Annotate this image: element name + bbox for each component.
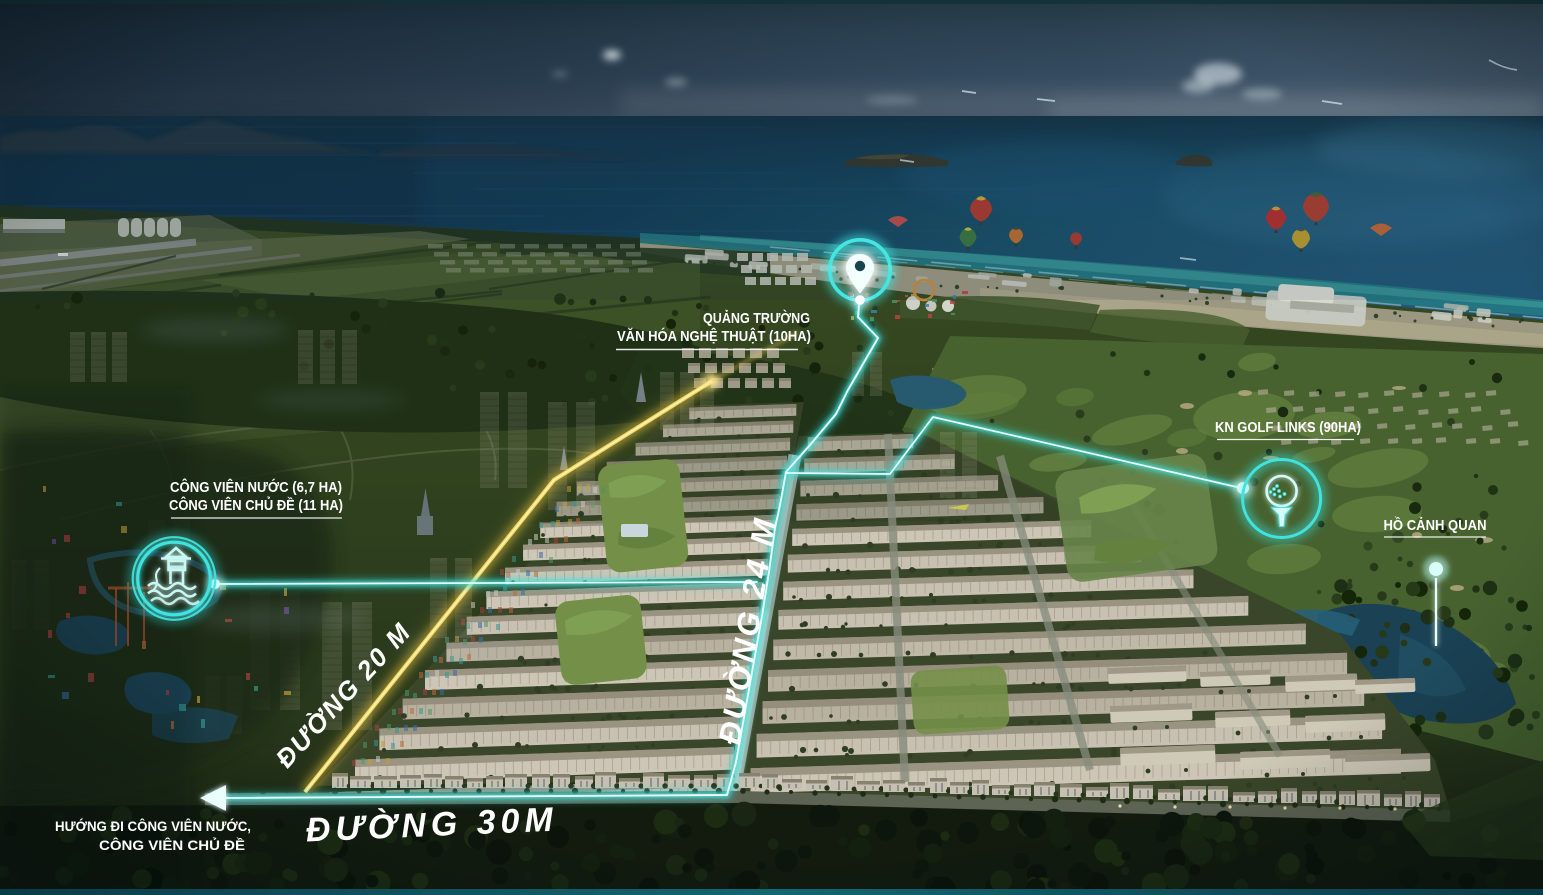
svg-text:CÔNG VIÊN CHỦ ĐỀ (11 HA): CÔNG VIÊN CHỦ ĐỀ (11 HA) <box>169 496 343 514</box>
svg-text:HỒ CẢNH QUAN: HỒ CẢNH QUAN <box>1384 516 1487 534</box>
svg-text:CÔNG VIÊN CHỦ ĐỀ: CÔNG VIÊN CHỦ ĐỀ <box>99 838 245 853</box>
svg-text:VĂN HÓA NGHỆ THUẬT (10HA): VĂN HÓA NGHỆ THUẬT (10HA) <box>617 327 811 345</box>
svg-text:HƯỚNG ĐI CÔNG VIÊN NƯỚC,: HƯỚNG ĐI CÔNG VIÊN NƯỚC, <box>55 819 251 834</box>
svg-text:KN GOLF LINKS (90HA): KN GOLF LINKS (90HA) <box>1215 420 1361 436</box>
svg-text:CÔNG VIÊN NƯỚC (6,7 HA): CÔNG VIÊN NƯỚC (6,7 HA) <box>170 478 342 496</box>
svg-text:QUẢNG TRƯỜNG: QUẢNG TRƯỜNG <box>703 309 810 327</box>
